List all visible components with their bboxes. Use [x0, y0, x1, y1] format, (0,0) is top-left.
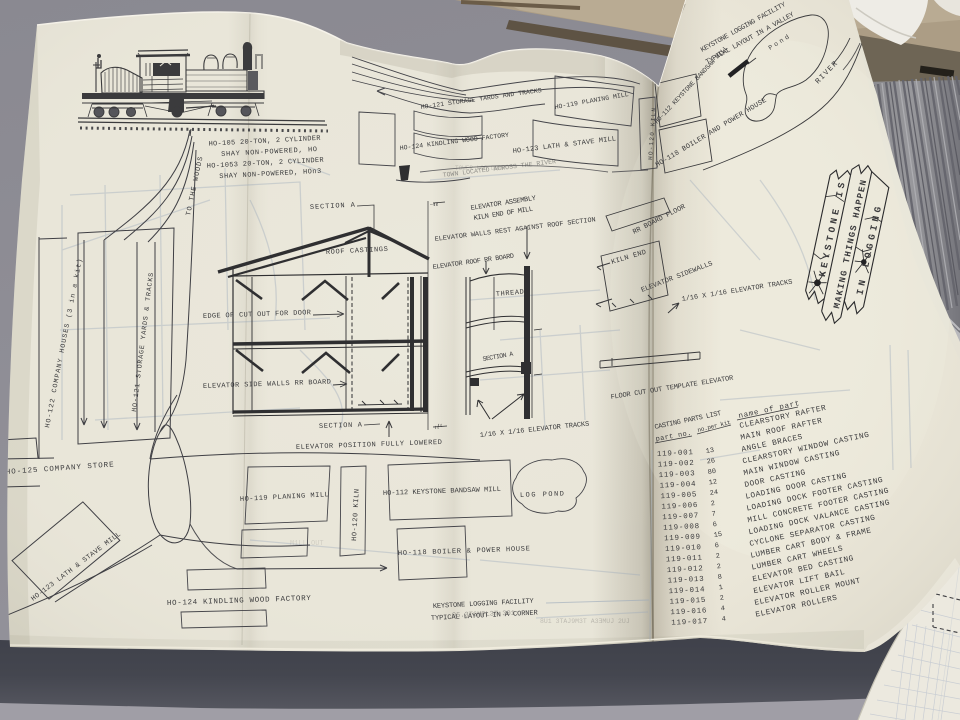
- svg-text:LOG POND: LOG POND: [520, 490, 564, 500]
- svg-text:26: 26: [706, 457, 715, 466]
- svg-text:24: 24: [709, 489, 718, 498]
- svg-text:—ℓℓ: —ℓℓ: [429, 202, 438, 208]
- svg-text:15: 15: [713, 531, 722, 540]
- svg-text:SECTION A: SECTION A: [319, 421, 363, 431]
- svg-text:M1LL OUT: M1LL OUT: [290, 540, 324, 548]
- svg-text:13: 13: [705, 447, 714, 456]
- svg-text:12: 12: [708, 478, 717, 487]
- svg-text:80: 80: [707, 468, 716, 477]
- svg-text:ℓℓ: ℓℓ: [437, 423, 443, 429]
- svg-text:8U1 3TAJ9M3T A3ƎMUJ 2UJ: 8U1 3TAJ9M3T A3ƎMUJ 2UJ: [540, 618, 630, 625]
